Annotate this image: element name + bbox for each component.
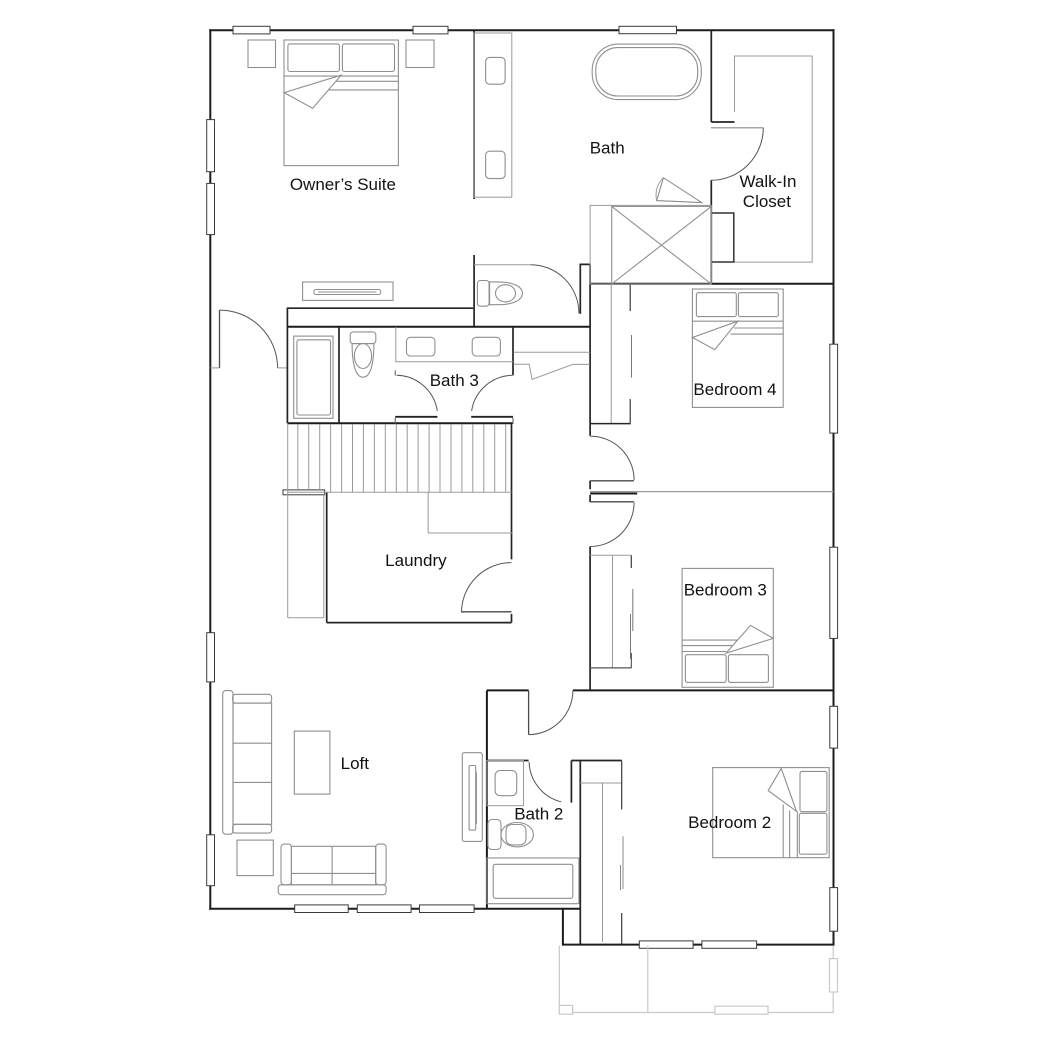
svg-text:Bedroom 3: Bedroom 3: [684, 580, 767, 599]
svg-text:Walk-In: Walk-In: [740, 172, 797, 191]
svg-text:Bath: Bath: [590, 138, 625, 157]
svg-text:Loft: Loft: [341, 754, 370, 773]
svg-text:Bath 3: Bath 3: [430, 371, 479, 390]
svg-text:Bedroom 2: Bedroom 2: [688, 813, 771, 832]
svg-text:Bedroom 4: Bedroom 4: [693, 380, 776, 399]
svg-text:Laundry: Laundry: [385, 551, 447, 570]
svg-text:Bath 2: Bath 2: [514, 805, 563, 824]
svg-text:Closet: Closet: [743, 192, 791, 211]
svg-text:Owner’s Suite: Owner’s Suite: [290, 175, 396, 194]
